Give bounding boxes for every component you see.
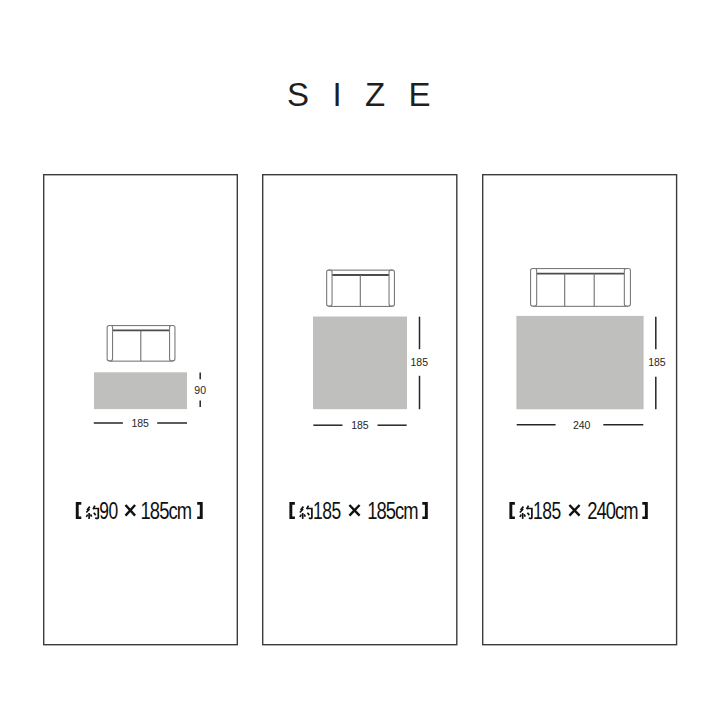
svg-text:185: 185 (351, 419, 369, 431)
svg-text:185cm: 185cm (367, 498, 417, 523)
svg-text:185: 185 (411, 356, 429, 368)
svg-text:240cm: 240cm (587, 498, 637, 523)
svg-text:185: 185 (131, 417, 149, 429)
svg-text:SIZE: SIZE (287, 76, 454, 113)
svg-text:185: 185 (313, 499, 341, 524)
svg-text:240: 240 (573, 419, 591, 431)
svg-text:185: 185 (533, 499, 561, 524)
svg-text:185: 185 (648, 356, 666, 368)
svg-text:90: 90 (99, 499, 118, 524)
svg-text:90: 90 (194, 384, 206, 396)
svg-text:185cm: 185cm (141, 498, 191, 523)
